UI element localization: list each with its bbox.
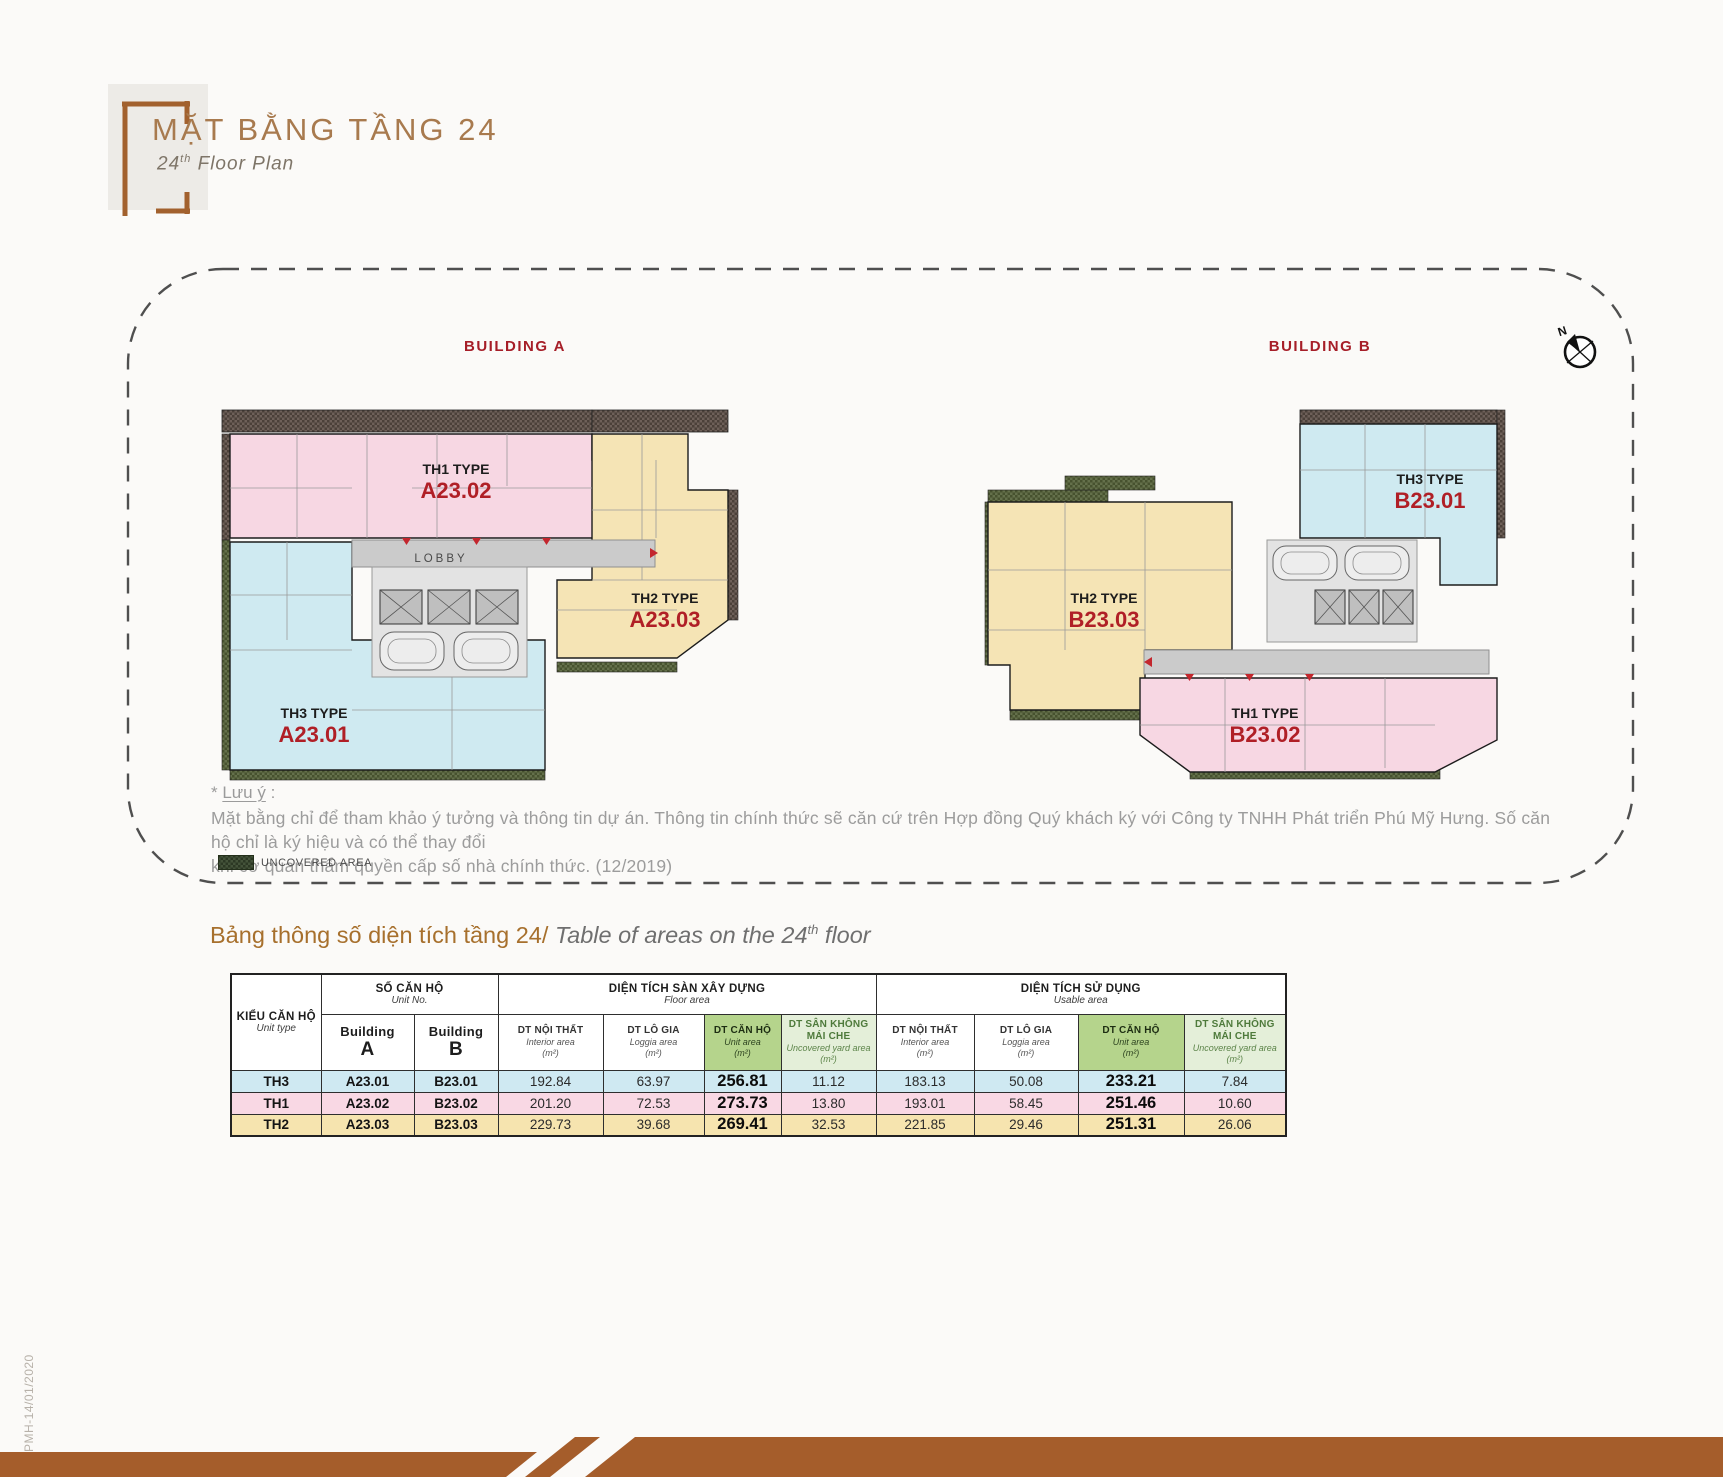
building-a-elevators: [380, 590, 518, 624]
table-row-th2: TH2 A23.03 B23.03 229.73 39.68 269.41 32…: [231, 1114, 1286, 1136]
areas-table: KIỂU CĂN HỘ Unit type SỐ CĂN HỘ Unit No.…: [230, 973, 1287, 1137]
table-group-header-row: KIỂU CĂN HỘ Unit type SỐ CĂN HỘ Unit No.…: [231, 974, 1286, 1014]
col-header-floor-unit-area: DT CĂN HỘ Unit area (m²): [704, 1014, 781, 1070]
col-header-building-a: Building A: [321, 1014, 414, 1070]
col-header-floor-loggia: DT LÔ GIA Loggia area (m²): [603, 1014, 704, 1070]
unit-b-th3-label: TH3 TYPE B23.01: [1395, 471, 1466, 513]
building-b-plan: TH3 TYPE B23.01 TH2 TYPE B23.03 TH1 TYPE…: [985, 410, 1505, 779]
col-header-usable-interior: DT NỘI THẤT Interior area (m²): [876, 1014, 974, 1070]
brochure-page: MẶT BẰNG TẦNG 24 24th Floor Plan BUILDIN…: [0, 0, 1723, 1477]
table-row-th1: TH1 A23.02 B23.02 201.20 72.53 273.73 13…: [231, 1092, 1286, 1114]
note-line-1: Mặt bằng chỉ để tham khảo ý tưởng và thô…: [211, 806, 1571, 854]
footer-slash: [525, 1437, 600, 1477]
col-header-building-b: Building B: [414, 1014, 498, 1070]
note-line-2: khi cơ quan thẩm quyền cấp số nhà chính …: [211, 854, 1571, 878]
table-row-th3: TH3 A23.01 B23.01 192.84 63.97 256.81 11…: [231, 1070, 1286, 1092]
svg-text:B23.02: B23.02: [1230, 722, 1301, 747]
svg-text:TH1 TYPE: TH1 TYPE: [1232, 705, 1299, 721]
group-header-floor-area: DIỆN TÍCH SÀN XÂY DỰNG Floor area: [498, 974, 876, 1014]
unit-a-th2-label: TH2 TYPE A23.03: [630, 590, 701, 632]
svg-text:TH2 TYPE: TH2 TYPE: [1071, 590, 1138, 606]
uncovered-area-label: UNCOVERED AREA: [261, 857, 372, 869]
svg-text:TH2 TYPE: TH2 TYPE: [632, 590, 699, 606]
col-header-usable-unit-area: DT CĂN HỘ Unit area (m²): [1078, 1014, 1184, 1070]
svg-text:A23.02: A23.02: [421, 478, 492, 503]
footer-decorative-bars: [0, 1437, 1723, 1477]
building-a-lobby-label: LOBBY: [414, 553, 467, 565]
footer-thick-bar: [585, 1437, 1723, 1477]
table-title: Bảng thông số diện tích tầng 24/ Table o…: [210, 922, 871, 949]
building-b-corridor: [1144, 650, 1489, 674]
building-b-elevators: [1315, 590, 1413, 624]
building-a-top-hatch: [222, 410, 592, 432]
building-a-plan: LOBBY TH1 TYPE A23.02 TH2 TYPE A23.03 TH…: [222, 410, 738, 780]
uncovered-area-swatch-icon: [218, 855, 254, 870]
col-header-usable-loggia: DT LÔ GIA Loggia area (m²): [974, 1014, 1078, 1070]
svg-text:TH1 TYPE: TH1 TYPE: [423, 461, 490, 477]
svg-text:TH3 TYPE: TH3 TYPE: [1397, 471, 1464, 487]
unit-b-th1-label: TH1 TYPE B23.02: [1230, 705, 1301, 747]
col-header-unit-type: KIỂU CĂN HỘ Unit type: [231, 974, 321, 1070]
group-header-unit-no: SỐ CĂN HỘ Unit No.: [321, 974, 498, 1014]
floor-plans-canvas: LOBBY TH1 TYPE A23.02 TH2 TYPE A23.03 TH…: [127, 268, 1632, 883]
table-sub-header-row: Building A Building B DT NỘI THẤT Interi…: [231, 1014, 1286, 1070]
col-header-floor-interior: DT NỘI THẤT Interior area (m²): [498, 1014, 603, 1070]
svg-text:A23.03: A23.03: [630, 607, 701, 632]
svg-text:B23.01: B23.01: [1395, 488, 1466, 513]
unit-b-th2-label: TH2 TYPE B23.03: [1069, 590, 1140, 632]
note-heading: * Lưu ý :: [211, 783, 275, 803]
building-b-top-hatch: [1300, 410, 1497, 424]
building-a-lobby-corridor: [352, 540, 655, 567]
note-text: Mặt bằng chỉ để tham khảo ý tưởng và thô…: [211, 806, 1571, 878]
footer-thin-bar: [0, 1452, 537, 1477]
svg-text:A23.01: A23.01: [279, 722, 350, 747]
page-subtitle: 24th Floor Plan: [157, 153, 294, 175]
unit-a-th3-label: TH3 TYPE A23.01: [279, 705, 350, 747]
svg-text:B23.03: B23.03: [1069, 607, 1140, 632]
group-header-usable-area: DIỆN TÍCH SỬ DỤNG Usable area: [876, 974, 1286, 1014]
svg-text:TH3 TYPE: TH3 TYPE: [281, 705, 348, 721]
building-a-left-uncovered: [222, 540, 230, 770]
unit-a-th1-label: TH1 TYPE A23.02: [421, 461, 492, 503]
col-header-usable-yard: DT SÂN KHÔNG MÁI CHE Uncovered yard area…: [1184, 1014, 1286, 1070]
page-title: MẶT BẰNG TẦNG 24: [152, 112, 499, 148]
col-header-floor-yard: DT SÂN KHÔNG MÁI CHE Uncovered yard area…: [781, 1014, 876, 1070]
uncovered-area-legend: UNCOVERED AREA: [218, 855, 372, 870]
